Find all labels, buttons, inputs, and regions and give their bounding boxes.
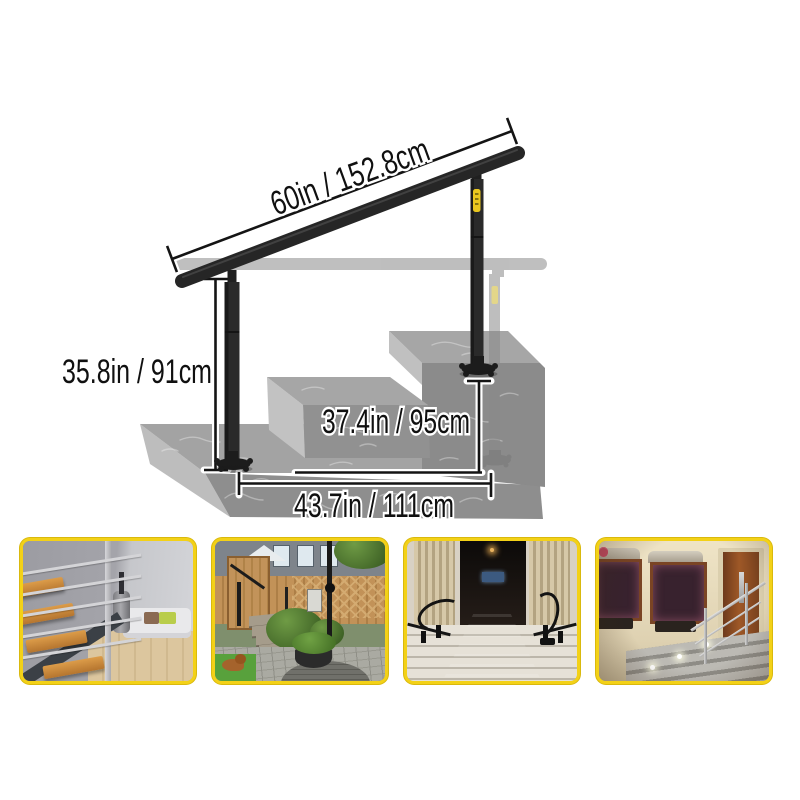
railing-post — [558, 631, 563, 644]
label-post-height: 35.8in / 91cm — [62, 353, 212, 391]
photo-garden-steps — [212, 538, 388, 684]
black-handrail-left — [237, 582, 241, 627]
dog-head — [235, 654, 245, 664]
ghost-brand-tag — [492, 286, 499, 304]
lantern — [307, 589, 323, 612]
left-post-shading — [225, 282, 229, 460]
product-image: 60in / 152.8cm 35.8in / 91cm 37.4in / 95… — [0, 0, 800, 800]
railing-post — [543, 625, 548, 638]
railing-post — [421, 631, 426, 644]
photo-evening-entrance — [596, 538, 772, 684]
stove-pipe — [119, 572, 124, 594]
green-pillow — [159, 612, 176, 623]
railing-post — [436, 625, 441, 638]
boxwood-mound — [292, 632, 336, 654]
pole-knob — [325, 583, 335, 593]
evening-vignette — [599, 541, 769, 681]
brown-pillow — [144, 612, 159, 623]
dark-doorway — [460, 541, 526, 625]
brand-tag — [473, 189, 481, 212]
handrail-dimension-diagram: 60in / 152.8cm 35.8in / 91cm 37.4in / 95… — [0, 0, 800, 535]
small-stool — [540, 638, 555, 645]
label-upper-height: 37.4in / 95cm — [322, 403, 470, 441]
house-window — [297, 545, 314, 567]
photo-red-carpet-entrance — [404, 538, 580, 684]
lit-interior-sign — [482, 572, 504, 582]
photo-indoor-staircase — [20, 538, 196, 684]
left-post-connector — [228, 270, 237, 284]
label-base-width: 43.7in / 111cm — [294, 487, 454, 525]
label-rail-length: 60in / 152.8cm — [266, 131, 435, 223]
